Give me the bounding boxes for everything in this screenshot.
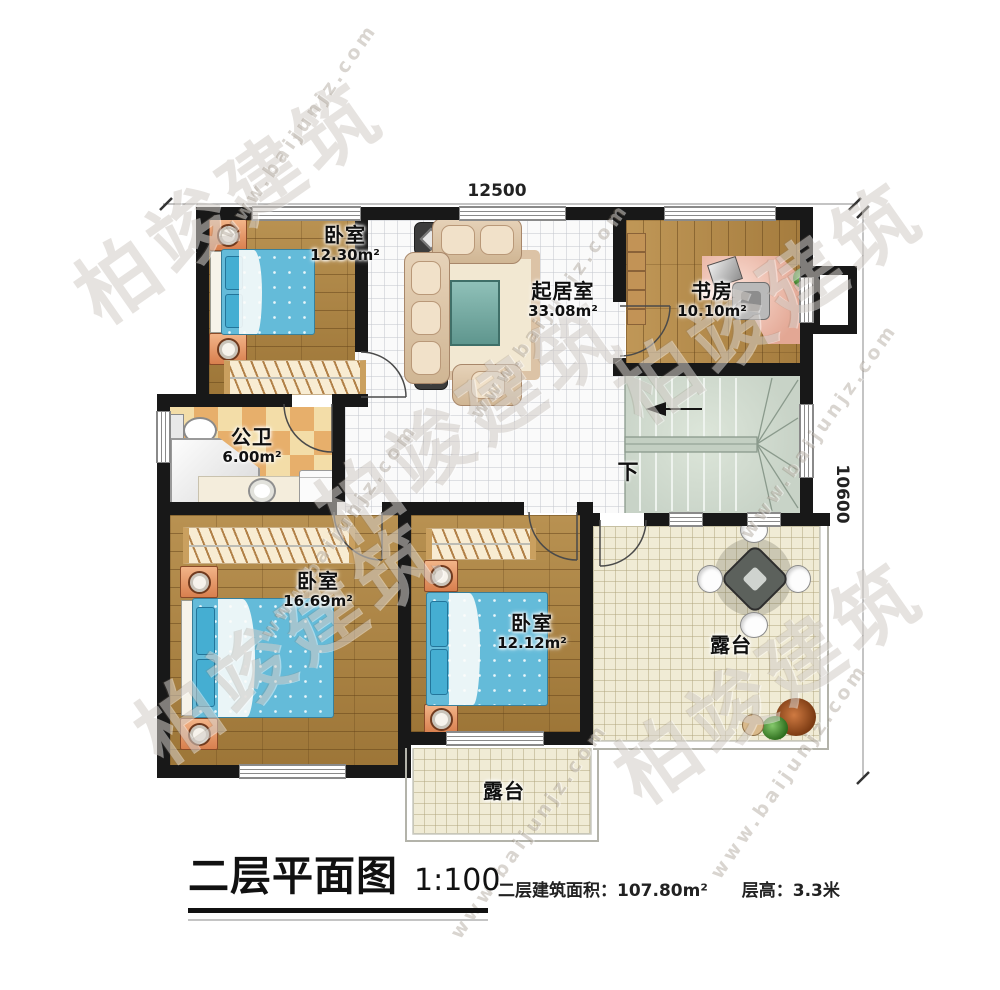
- room-label-bedroom-top-left: 卧室 12.30m²: [285, 224, 405, 264]
- title-underline: [188, 908, 488, 913]
- room-label-bedroom-bottom-left: 卧室 16.69m²: [258, 570, 378, 610]
- room-label-living: 起居室 33.08m²: [503, 280, 623, 320]
- room-label-bedroom-bottom-center: 卧室 12.12m²: [472, 612, 592, 652]
- dimension-top: 12500: [437, 181, 557, 201]
- room-label-bathroom: 公卫 6.00m²: [192, 426, 312, 466]
- plan-scale: 1:100: [414, 863, 500, 898]
- plan-info: 二层建筑面积：107.80m²层高：3.3米: [498, 876, 840, 901]
- story-height-label: 层高：: [742, 881, 793, 901]
- room-label-terrace-bottom: 露台: [444, 780, 564, 803]
- floor-area-label: 二层建筑面积：: [498, 881, 617, 901]
- title-underline-thin: [188, 919, 488, 921]
- dimension-right: 10600: [832, 464, 852, 524]
- stairs-down-label: 下: [608, 456, 648, 486]
- door-arcs: [284, 306, 670, 566]
- story-height-value: 3.3米: [793, 881, 840, 901]
- stair-direction-arrow-icon: [646, 402, 702, 416]
- room-label-study: 书房 10.10m²: [652, 280, 772, 320]
- plan-title: 二层平面图: [188, 852, 398, 900]
- stair-handrail: [625, 437, 757, 452]
- room-label-terrace-right: 露台: [671, 634, 791, 657]
- floor-area-value: 107.80m²: [617, 881, 708, 901]
- floor-plan-page: 柏竣建筑 柏竣建筑 柏竣建筑 柏竣建筑 柏竣建筑 www.baijunjz.co…: [0, 0, 1000, 990]
- title-block: 二层平面图1:100: [188, 842, 488, 921]
